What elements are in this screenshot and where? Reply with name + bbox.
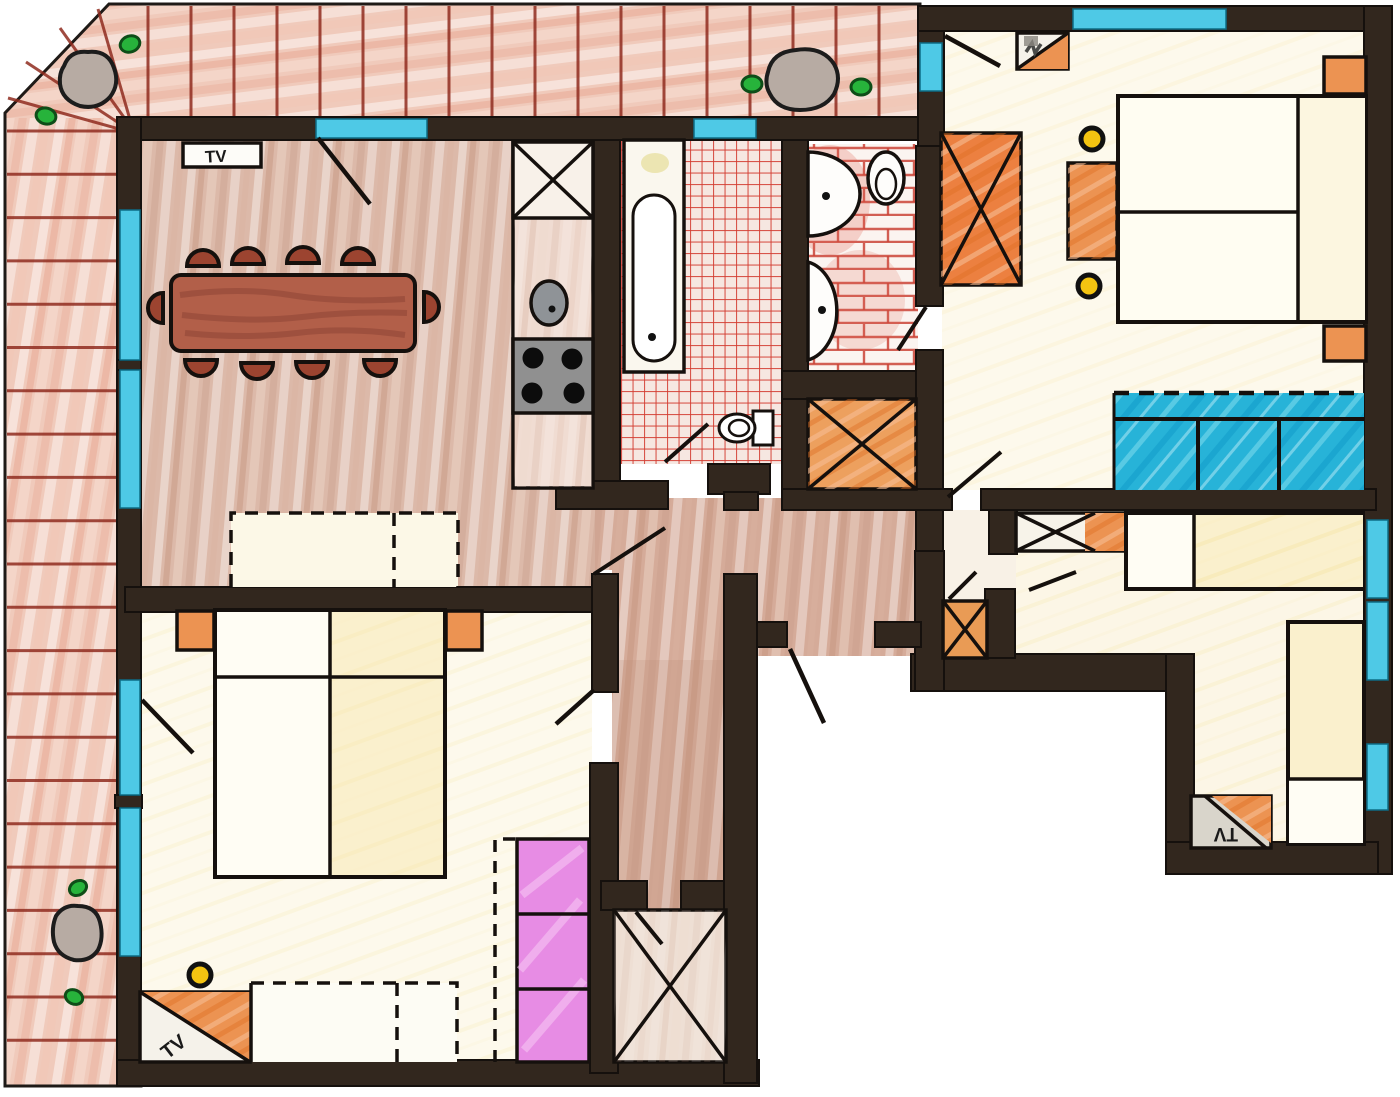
svg-text:TV: TV xyxy=(204,147,227,167)
svg-text:TV: TV xyxy=(1213,823,1238,844)
